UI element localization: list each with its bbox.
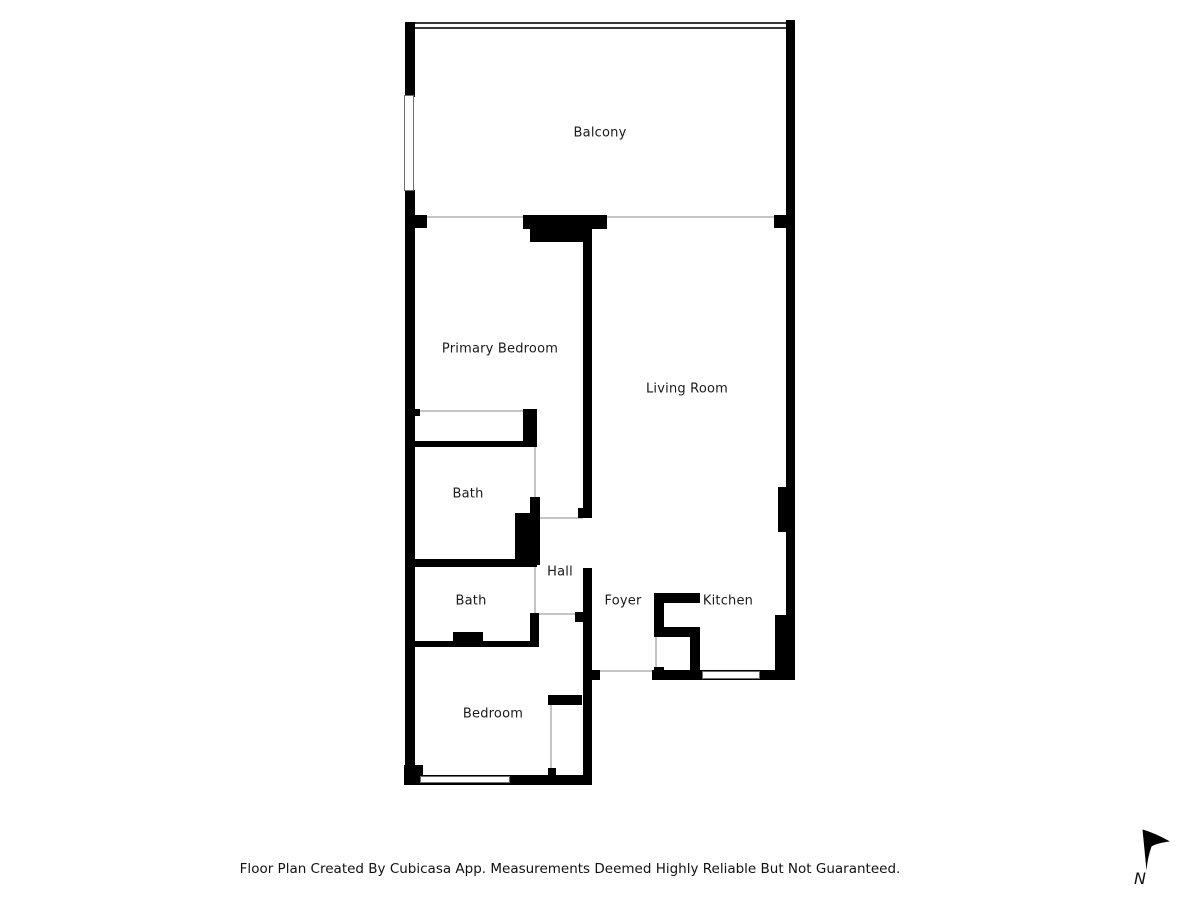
living-room-pillar	[778, 487, 786, 532]
entry-closet-door	[655, 637, 657, 668]
bath-upper-door	[534, 447, 536, 497]
entry-door-opening	[600, 670, 652, 672]
bedroom-window	[420, 776, 510, 783]
wall-cap-hall-door	[578, 508, 592, 518]
closet-stub-left	[405, 409, 420, 416]
exterior-wall-left	[405, 190, 415, 785]
bedroom-closet-stub	[548, 768, 556, 777]
kitchen-pillar	[775, 615, 786, 672]
kitchen-closet-east-wall	[690, 627, 700, 672]
room-label-kitchen: Kitchen	[703, 594, 753, 609]
room-label-hall: Hall	[547, 565, 573, 580]
wall-bath-upper-north	[412, 441, 535, 447]
balcony-railing	[405, 22, 795, 29]
bedroom-closet-door	[550, 705, 552, 768]
balcony-wall-stub-right	[774, 215, 786, 228]
wall-bedroom-east	[583, 617, 592, 785]
north-label: N	[1134, 869, 1146, 888]
kitchen-window	[702, 671, 760, 679]
bedroom-closet-top	[548, 695, 582, 705]
room-label-bath-upper: Bath	[452, 487, 483, 502]
balcony-wall-stub-left	[415, 215, 427, 228]
wall-corner-foyer-south	[583, 670, 600, 680]
wall-primary-bedroom-living-room	[583, 229, 592, 508]
hall-south-opening	[537, 613, 578, 615]
wall-hall-foyer	[583, 568, 592, 617]
kitchen-closet-stub	[654, 667, 664, 676]
balcony-wall-block-lower	[530, 229, 588, 242]
wall-bath-lower-south	[412, 641, 537, 647]
wall-bath-upper-south	[412, 559, 537, 567]
bath-lower-door	[534, 567, 536, 613]
bath-lower-fixture	[453, 632, 483, 641]
room-label-bath-lower: Bath	[455, 594, 486, 609]
north-arrow-icon: N	[1128, 822, 1180, 890]
room-label-primary-bedroom: Primary Bedroom	[442, 342, 558, 357]
exterior-wall-right	[786, 20, 795, 680]
balcony-door-living-room	[607, 216, 774, 218]
plumbing-chase-block	[515, 513, 540, 565]
floor-plan: Balcony Primary Bedroom Living Room Bath…	[0, 0, 1200, 900]
room-label-living-room: Living Room	[646, 382, 728, 397]
room-label-bedroom: Bedroom	[463, 707, 523, 722]
hall-north-opening	[537, 517, 583, 519]
room-label-foyer: Foyer	[604, 594, 641, 609]
primary-closet-front	[415, 410, 523, 412]
disclaimer-text: Floor Plan Created By Cubicasa App. Meas…	[0, 861, 1140, 877]
wall-segment-bath-upper-east	[530, 497, 540, 514]
room-label-balcony: Balcony	[574, 126, 627, 141]
balcony-door-primary-bedroom	[427, 216, 523, 218]
balcony-side-window	[404, 95, 414, 191]
balcony-wall-block	[523, 215, 607, 229]
exterior-wall-left-upper	[405, 22, 415, 97]
